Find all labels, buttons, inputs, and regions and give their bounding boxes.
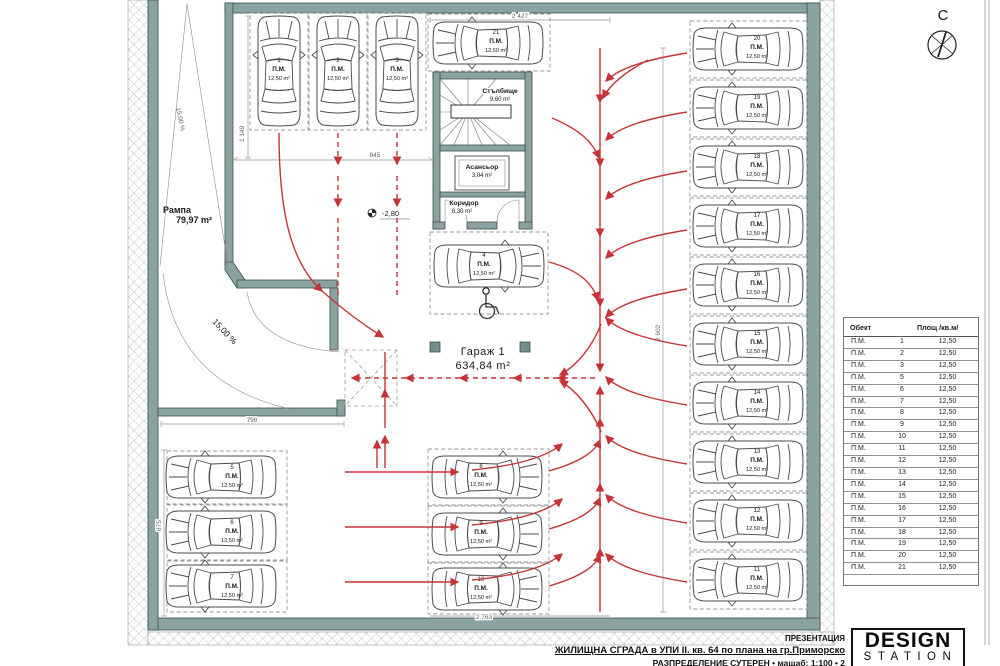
spot-label: П.М. [750, 575, 764, 582]
spot-label: П.М. [474, 585, 488, 592]
table-cell: 15 [887, 491, 917, 503]
table-cell: П.М. [844, 491, 887, 503]
spot-label: 11 [754, 567, 761, 573]
table-cell: 14 [887, 479, 917, 491]
parking-spot-2: 2П.М.12,50 m² [309, 13, 367, 130]
table-cell: 12,50 [917, 408, 978, 420]
corridor-area: 8,30 m² [452, 209, 472, 215]
dim-left-upper: 1 149 [239, 125, 246, 142]
table-cell: 5 [887, 372, 917, 384]
table-row: П.М.1712,50 [844, 515, 978, 527]
table-cell: 16 [887, 503, 917, 515]
table-cell: П.М. [844, 515, 887, 527]
col-area: Площ /кв.м/ [917, 318, 978, 337]
table-cell: 12 [887, 456, 917, 468]
ramp-area: 79,97 m² [176, 215, 212, 225]
parking-spot-14: 14П.М.12,50 m² [690, 375, 807, 432]
parking-spot-13: 13П.М.12,50 m² [690, 434, 807, 491]
spot-label: П.М. [225, 528, 239, 535]
table-cell: 1 [887, 337, 917, 349]
spot-label: 12,50 m² [470, 595, 492, 601]
garage-gate [345, 350, 397, 406]
ramp-slope-lower: 15,00 % [211, 317, 240, 347]
parking-spot-18: 18П.М.12,50 m² [690, 139, 807, 196]
spot-label: 13 [754, 449, 761, 455]
project-title: ЖИЛИЩНА СГРАДА в УПИ II. кв. 64 по плана… [555, 645, 845, 656]
table-cell: 2 [887, 348, 917, 360]
parking-spot-6: 6П.М.12,50 m² [166, 505, 287, 560]
elevator: Асансьор 3,04 m² [455, 156, 509, 190]
parking-spot-19: 19П.М.12,50 m² [690, 80, 807, 137]
table-cell: 12,50 [917, 467, 978, 479]
table-cell: 12,50 [917, 539, 978, 551]
spot-label: П.М. [225, 583, 239, 590]
table-cell: 12,50 [917, 491, 978, 503]
elevator-label: Асансьор [466, 164, 499, 171]
table-cell: 6 [887, 384, 917, 396]
table-row: П.М.1612,50 [844, 503, 978, 515]
dim-left-lower: 875 [156, 520, 163, 531]
area-table: Обект Площ /кв.м/ П.М.112,50П.М.212,50П.… [844, 318, 978, 575]
logo-line-design: DESIGN [853, 631, 963, 651]
table-cell: 21 [887, 563, 917, 575]
spot-label: 16 [754, 272, 761, 278]
parking-spot-5: 5П.М.12,50 m² [166, 451, 287, 504]
table-row: П.М.112,50 [844, 337, 978, 349]
parking-spot-21: 21П.М.12,50 m² [428, 14, 550, 71]
table-cell: П.М. [844, 563, 887, 575]
parking-spot-7: 7П.М.12,50 m² [166, 560, 287, 612]
spot-label: 21 [493, 30, 500, 36]
spot-label: 12,50 m² [746, 526, 768, 532]
compass-north-label: С [938, 7, 949, 24]
table-row: П.М.1012,50 [844, 432, 978, 444]
spot-label: 14 [754, 390, 761, 396]
presentation-label: ПРЕЗЕНТАЦИЯ [785, 634, 845, 643]
table-row: П.М.912,50 [844, 420, 978, 432]
dim-upper-inner: 845 [370, 152, 381, 159]
spot-label: 17 [754, 213, 761, 219]
table-row: П.М.1812,50 [844, 527, 978, 539]
spot-label: П.М. [750, 398, 764, 405]
logo-line-station: STATION [858, 651, 963, 663]
dim-right-inner: 2 602 [655, 324, 662, 341]
table-cell: 12,50 [917, 527, 978, 539]
table-cell: П.М. [844, 444, 887, 456]
spot-label: 12,50 m² [386, 76, 408, 82]
parking-spot-12: 12П.М.12,50 m² [690, 493, 807, 550]
table-cell: П.М. [844, 337, 887, 349]
table-cell: 3 [887, 360, 917, 372]
spot-label: П.М. [750, 44, 764, 51]
table-row: П.М.1412,50 [844, 479, 978, 491]
design-station-logo: DESIGN STATION [851, 628, 965, 666]
level-marker: -2,80 [368, 209, 410, 219]
svg-text:-2,80: -2,80 [382, 209, 399, 218]
table-row: П.М.512,50 [844, 372, 978, 384]
spot-label: 15 [754, 331, 761, 337]
table-row: П.М.812,50 [844, 408, 978, 420]
spot-label: 12,50 m² [746, 54, 768, 60]
corridor: Коридор 8,30 m² [445, 200, 519, 222]
parking-spot-8: 8П.М.12,50 m² [428, 449, 549, 505]
table-cell: 12,50 [917, 337, 978, 349]
table-cell: П.М. [844, 348, 887, 360]
table-cell: 12,50 [917, 396, 978, 408]
spot-label: П.М. [331, 66, 345, 73]
table-row: П.М.2112,50 [844, 563, 978, 575]
table-row: П.М.1912,50 [844, 539, 978, 551]
table-row: П.М.1212,50 [844, 456, 978, 468]
table-cell: 12,50 [917, 444, 978, 456]
svg-text:Гараж 1: Гараж 1 [461, 346, 505, 358]
spot-label: П.М. [477, 261, 491, 268]
spot-label: П.М. [750, 457, 764, 464]
table-cell: 9 [887, 420, 917, 432]
spot-label: П.М. [225, 473, 239, 480]
parking-spot-1: 1П.М.12,50 m² [250, 13, 308, 130]
spot-label: 18 [754, 154, 761, 160]
dim-ramp-bottom: 798 [247, 417, 258, 424]
spot-label: 12,50 m² [470, 482, 492, 488]
corridor-label: Коридор [449, 200, 478, 207]
spot-label: 19 [754, 95, 761, 101]
table-cell: 8 [887, 408, 917, 420]
spot-label: П.М. [474, 472, 488, 479]
spot-label: 12,50 m² [746, 113, 768, 119]
table-cell: 13 [887, 467, 917, 479]
col-object: Обект [844, 318, 917, 337]
table-cell: П.М. [844, 384, 887, 396]
area-table-panel: Обект Площ /кв.м/ П.М.112,50П.М.212,50П.… [843, 317, 979, 586]
table-row: П.М.312,50 [844, 360, 978, 372]
spot-label: П.М. [272, 66, 286, 73]
table-cell: 10 [887, 432, 917, 444]
table-cell: П.М. [844, 432, 887, 444]
table-cell: П.М. [844, 539, 887, 551]
spot-label: П.М. [750, 280, 764, 287]
table-row: П.М.212,50 [844, 348, 978, 360]
ramp-label: Рампа [163, 205, 192, 215]
drawing-subtitle: РАЗПРЕДЕЛЕНИЕ СУТЕРЕН • мащаб: 1:100 • 2 [653, 658, 845, 666]
table-cell: 12,50 [917, 456, 978, 468]
table-header-row: Обект Площ /кв.м/ [844, 318, 978, 337]
parking-spots: 1П.М.12,50 m²2П.М.12,50 m²3П.М.12,50 m²4… [166, 13, 807, 615]
table-cell: 20 [887, 551, 917, 563]
table-cell: П.М. [844, 479, 887, 491]
spot-label: П.М. [750, 162, 764, 169]
spot-label: 12,50 m² [221, 483, 243, 489]
spot-label: П.М. [750, 103, 764, 110]
table-cell: П.М. [844, 360, 887, 372]
spot-label: 12 [754, 508, 761, 514]
spot-label: П.М. [390, 66, 404, 73]
table-cell: П.М. [844, 467, 887, 479]
table-row: П.М.712,50 [844, 396, 978, 408]
spot-label: 12,50 m² [473, 271, 495, 277]
spot-label: 12,50 m² [746, 172, 768, 178]
garage-label: Гараж 1 634,84 m² [456, 346, 511, 372]
table-cell: 12,50 [917, 432, 978, 444]
stairwell: Стълбище 9,60 m² [440, 79, 518, 145]
spot-label: 12,50 m² [746, 231, 768, 237]
stairs-area: 9,60 m² [490, 97, 510, 103]
spot-label: 12,50 m² [746, 290, 768, 296]
table-cell: П.М. [844, 503, 887, 515]
floor-plan-sheet: Стълбище 9,60 m² Асансьор 3,04 m² Коридо… [0, 0, 1000, 666]
table-cell: 12,50 [917, 563, 978, 575]
table-cell: П.М. [844, 527, 887, 539]
table-cell: 12,50 [917, 420, 978, 432]
table-cell: 12,50 [917, 503, 978, 515]
spot-label: 12,50 m² [327, 76, 349, 82]
table-cell: П.М. [844, 408, 887, 420]
table-row: П.М.2012,50 [844, 551, 978, 563]
spot-label: П.М. [750, 516, 764, 523]
table-cell: П.М. [844, 420, 887, 432]
spot-label: 12,50 m² [268, 76, 290, 82]
table-cell: 19 [887, 539, 917, 551]
parking-spot-11: 11П.М.12,50 m² [690, 552, 807, 609]
table-cell: 12,50 [917, 551, 978, 563]
ramp-slope-upper: 15,00 % [174, 107, 186, 132]
parking-spot-16: 16П.М.12,50 m² [690, 257, 807, 314]
compass: С [928, 7, 956, 59]
spot-label: П.М. [489, 38, 503, 45]
spot-label: 12,50 m² [221, 538, 243, 544]
parking-spot-10: 10П.М.12,50 m² [428, 563, 549, 615]
table-cell: 7 [887, 396, 917, 408]
parking-spot-4: 4П.М.12,50 m² [430, 232, 548, 314]
spot-label: П.М. [750, 339, 764, 346]
stairs-label: Стълбище [482, 87, 518, 95]
parking-spot-15: 15П.М.12,50 m² [690, 316, 807, 373]
table-cell: 18 [887, 527, 917, 539]
spot-label: П.М. [750, 221, 764, 228]
parking-spot-20: 20П.М.12,50 m² [690, 21, 807, 78]
table-cell: П.М. [844, 372, 887, 384]
table-cell: 12,50 [917, 515, 978, 527]
table-row: П.М.1112,50 [844, 444, 978, 456]
table-cell: П.М. [844, 396, 887, 408]
table-cell: 12,50 [917, 360, 978, 372]
elevator-area: 3,04 m² [472, 173, 492, 179]
svg-text:634,84 m²: 634,84 m² [456, 360, 511, 372]
table-cell: 12,50 [917, 348, 978, 360]
spot-label: 12,50 m² [485, 48, 507, 54]
spot-label: П.М. [474, 529, 488, 536]
spot-label: 12,50 m² [221, 593, 243, 599]
dim-top: 2 427 [512, 13, 529, 20]
spot-label: 12,50 m² [746, 349, 768, 355]
spot-label: 12,50 m² [746, 408, 768, 414]
table-row: П.М.1512,50 [844, 491, 978, 503]
table-cell: 11 [887, 444, 917, 456]
parking-spot-3: 3П.М.12,50 m² [368, 13, 426, 130]
spot-label: 20 [754, 36, 761, 42]
table-row: П.М.1312,50 [844, 467, 978, 479]
table-cell: П.М. [844, 551, 887, 563]
table-cell: П.М. [844, 456, 887, 468]
table-cell: 17 [887, 515, 917, 527]
table-cell: 12,50 [917, 372, 978, 384]
spot-label: 12,50 m² [746, 467, 768, 473]
table-cell: 12,50 [917, 479, 978, 491]
spot-label: 12,50 m² [470, 539, 492, 545]
table-cell: 12,50 [917, 384, 978, 396]
dim-bottom: 2 763 [476, 614, 493, 621]
parking-spot-17: 17П.М.12,50 m² [690, 198, 807, 255]
spot-label: 12,50 m² [746, 585, 768, 591]
table-row: П.М.612,50 [844, 384, 978, 396]
